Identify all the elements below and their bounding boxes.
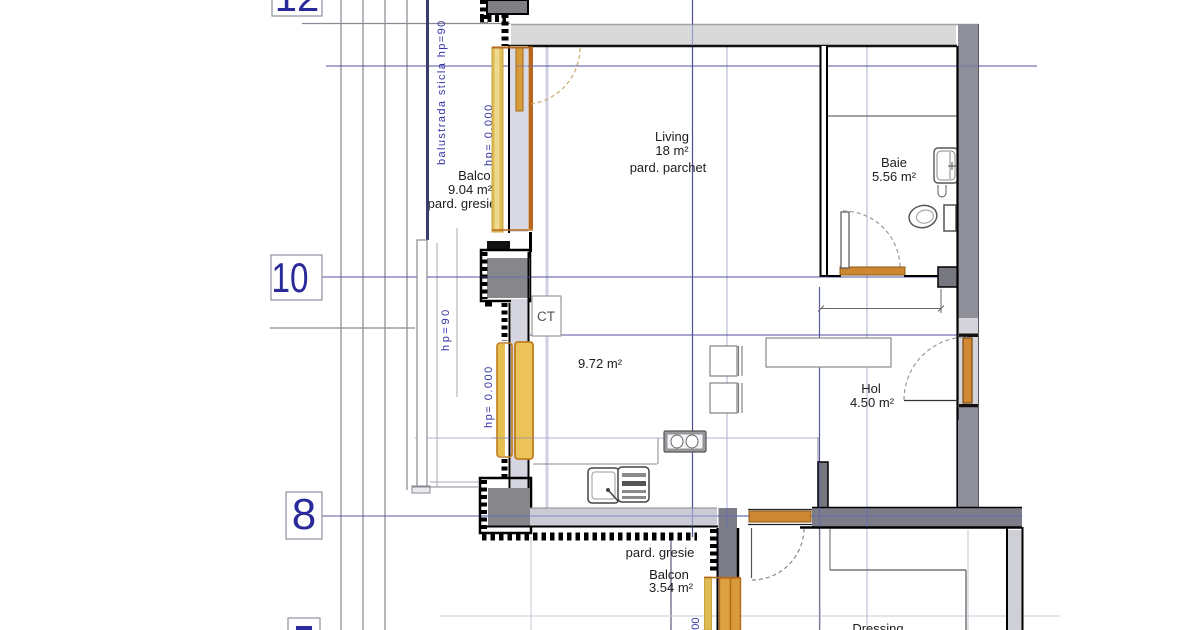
svg-text:Living: Living (655, 129, 689, 144)
svg-text:Dressing: Dressing (852, 621, 903, 630)
svg-text:CT: CT (537, 309, 555, 324)
svg-text:18 m²: 18 m² (655, 143, 689, 158)
svg-text:hp=90: hp=90 (440, 307, 452, 351)
svg-text:Baie: Baie (881, 155, 907, 170)
svg-text:pard. parchet: pard. parchet (630, 160, 707, 175)
svg-text:5.56 m²: 5.56 m² (872, 169, 917, 184)
svg-text:3.54 m²: 3.54 m² (649, 580, 694, 595)
svg-text:9.04 m²: 9.04 m² (448, 182, 493, 197)
svg-text:hp= 0.000: hp= 0.000 (483, 365, 495, 428)
svg-text:pard. gresie: pard. gresie (626, 545, 695, 560)
svg-text:8: 8 (292, 490, 316, 539)
svg-text:balustrada sticla hp=90: balustrada sticla hp=90 (436, 19, 448, 165)
svg-text:12: 12 (275, 0, 320, 20)
svg-text:9.72 m²: 9.72 m² (578, 356, 623, 371)
svg-text:4.50 m²: 4.50 m² (850, 395, 895, 410)
svg-text:pard. gresie: pard. gresie (428, 196, 497, 211)
svg-text:10: 10 (272, 254, 309, 301)
svg-text:0.000: 0.000 (690, 617, 702, 630)
svg-text:Hol: Hol (861, 381, 881, 396)
